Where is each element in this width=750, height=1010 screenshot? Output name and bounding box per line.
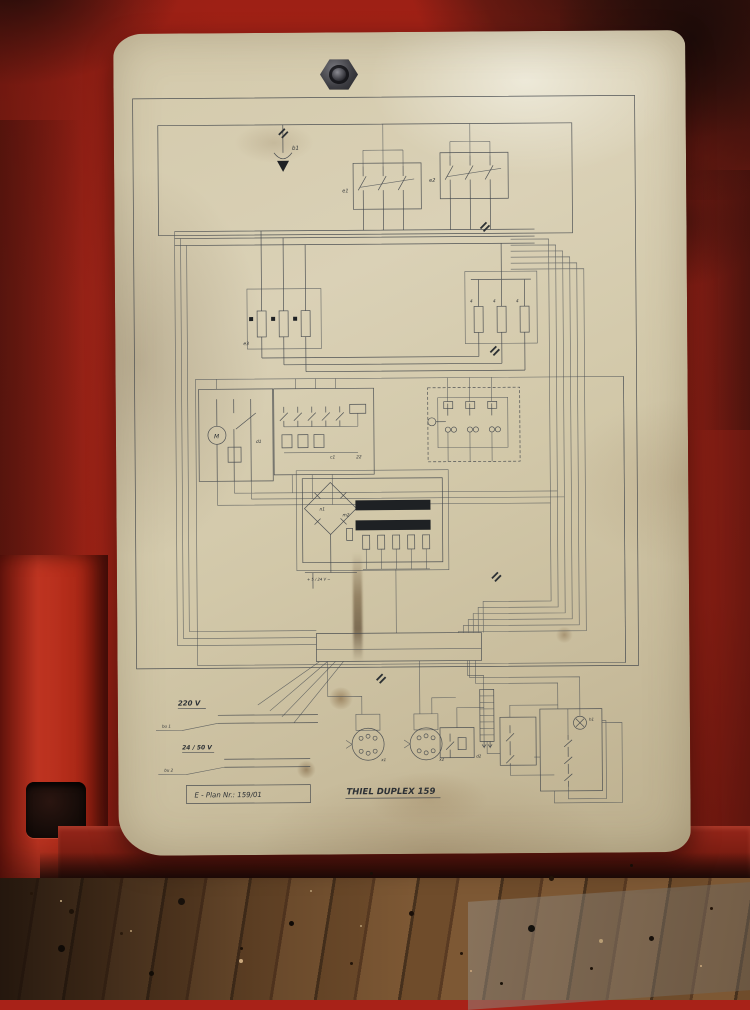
gray-floor-plank: [468, 882, 750, 1010]
ground-label: b1: [292, 146, 299, 152]
lamp-label: h1: [589, 717, 594, 722]
dc-output-label: + 5 / 24 V −: [307, 577, 331, 582]
right-bus-lines: [456, 239, 587, 633]
strip-ref: bu 2: [164, 768, 173, 773]
transformer-label: m2: [342, 512, 349, 518]
aux-contact-block: [428, 377, 521, 462]
voltage-label: 220 V: [178, 699, 201, 707]
schematic-poster: b1 e1 e2: [113, 30, 691, 856]
floor-debris: [30, 892, 33, 895]
fuse-group-label: e3: [243, 341, 249, 347]
junction-mark: [377, 674, 386, 683]
junction-mark: [492, 572, 501, 581]
connector-label: x1: [380, 757, 386, 762]
switch-label: e2: [429, 178, 435, 184]
relay-label: d1: [256, 439, 262, 445]
fuse-rating: 4: [470, 299, 473, 304]
connector-x1: x1: [328, 661, 387, 762]
frame-lines: [133, 95, 639, 668]
mini-terminal-strip: [468, 660, 501, 753]
motor-relay-block: M d1: [199, 377, 565, 506]
ground-symbol: b1: [274, 125, 299, 172]
contact-block-label: c1: [330, 454, 335, 460]
fuse-rating: 4: [493, 298, 496, 303]
titleblock: E - Plan Nr.: 159/01 THIEL DUPLEX 159: [186, 784, 440, 804]
control-panel-box: h1: [470, 659, 623, 803]
aux-relay: d2: [440, 707, 484, 758]
junction-mark: [480, 222, 489, 231]
junction-mark: [279, 129, 288, 138]
strip-220v: 220 V bu 1: [156, 699, 318, 731]
connector-x2: x2: [404, 661, 457, 762]
contact-block: c1 22: [274, 378, 375, 505]
fuse-group-right: 4 4 4: [465, 243, 538, 370]
contact-terminal: 22: [356, 454, 362, 460]
main-switch-right: e2: [429, 123, 509, 230]
motor-letter: M: [214, 433, 220, 440]
junction-mark: [490, 346, 499, 355]
voltage-label: 24 / 50 V: [182, 744, 213, 751]
relay-label: d2: [476, 753, 482, 758]
power-supply-block: n1 m2 + 5 / 24 V −: [296, 470, 449, 634]
strip-24-50v: 24 / 50 V bu 2: [158, 744, 310, 775]
main-terminal-strip: [257, 632, 482, 723]
switch-box: [500, 705, 558, 775]
switch-label: e1: [342, 188, 348, 194]
main-switch-left: e1: [342, 124, 422, 231]
schematic-diagram: b1 e1 e2: [113, 30, 691, 856]
fuse-group-left: e3: [243, 229, 525, 372]
fuse-rating: 4: [516, 298, 519, 303]
plan-number: E - Plan Nr.: 159/01: [194, 791, 261, 799]
machine-title: THIEL DUPLEX 159: [346, 787, 435, 798]
rectifier-label: n1: [319, 507, 325, 513]
strip-ref: bu 1: [162, 724, 171, 729]
floor-sawdust: [60, 900, 62, 902]
